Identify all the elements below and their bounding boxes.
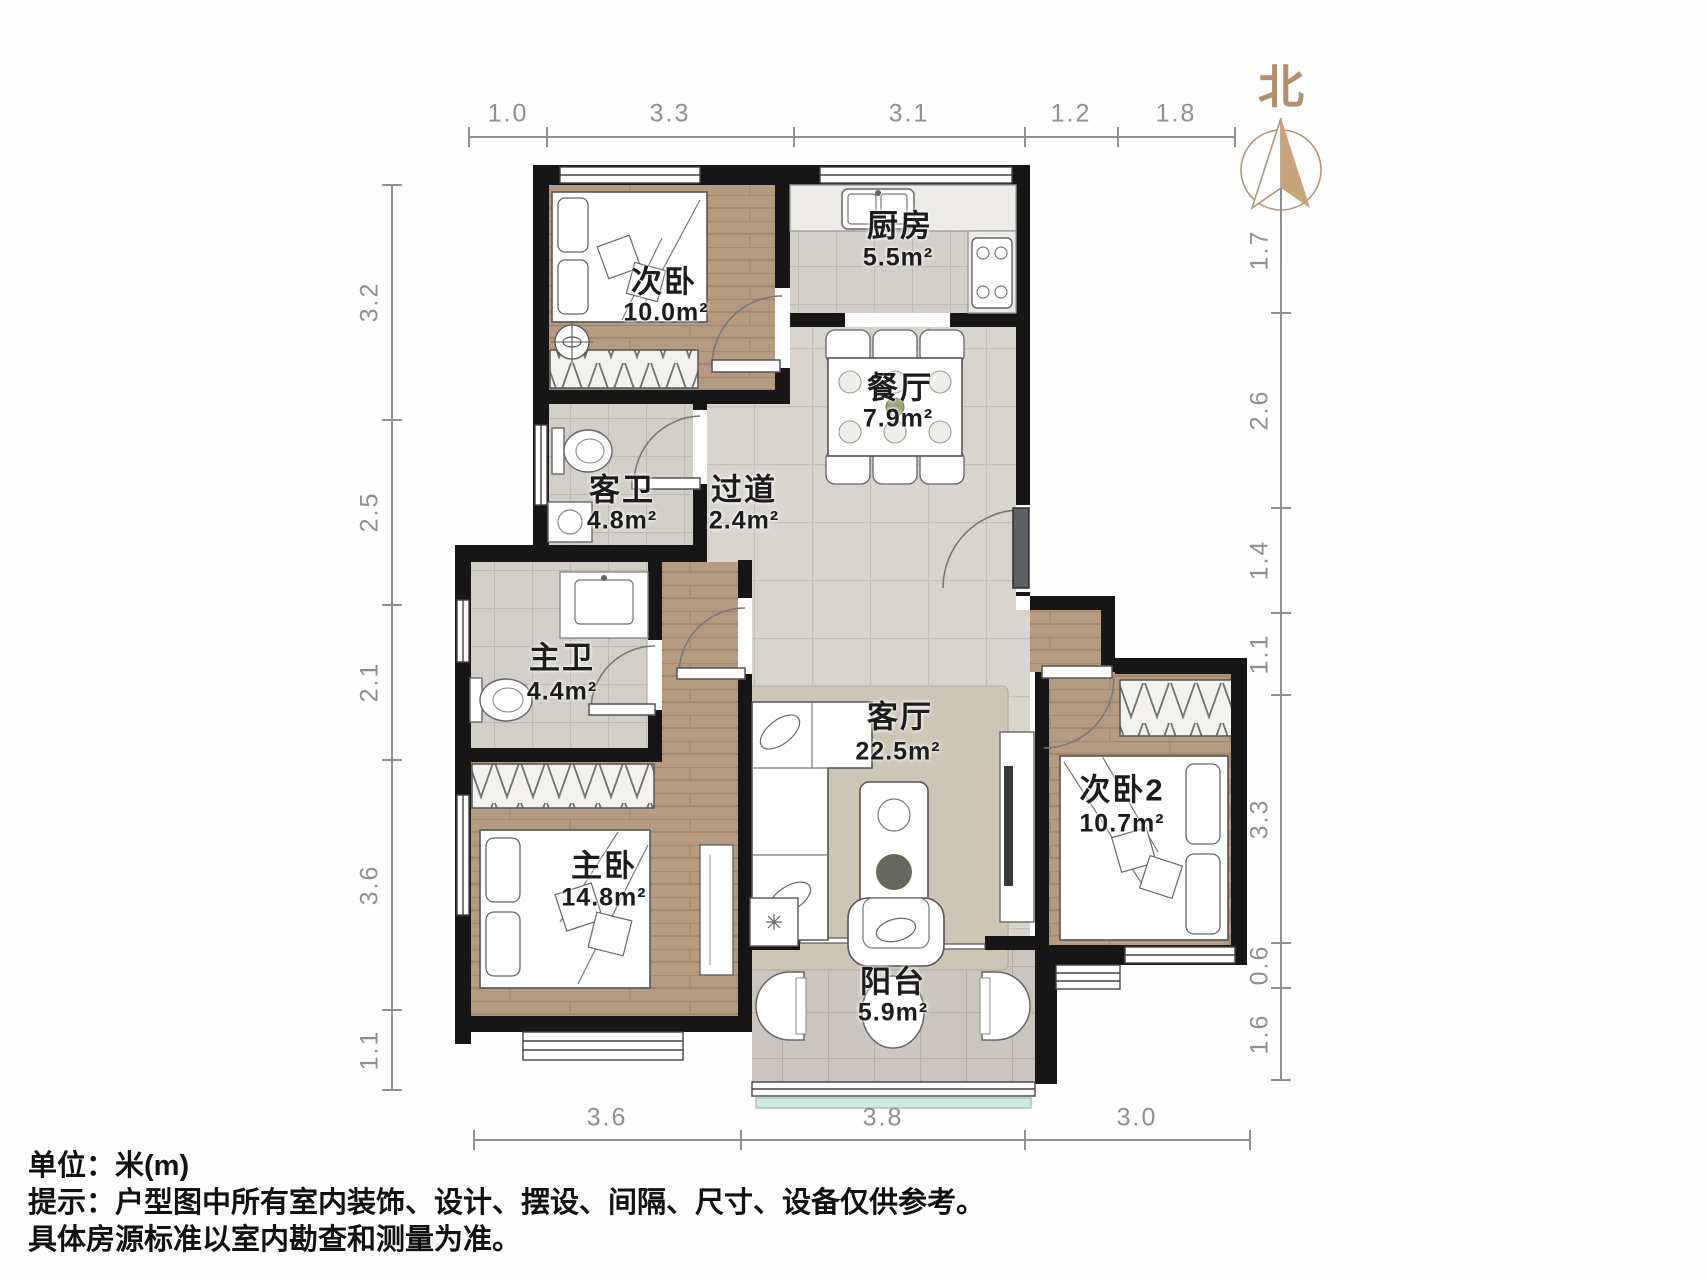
room-name: 次卧2: [1079, 775, 1164, 806]
sink-guest-bathroom: [548, 502, 592, 542]
dim-top-2: 3.3: [650, 100, 691, 129]
toilet-master-bathroom: [470, 678, 532, 722]
room-name: 餐厅: [867, 373, 933, 404]
dim-right-3: 1.4: [1246, 540, 1275, 581]
window-guest-bathroom: [535, 425, 547, 505]
dim-right-6: 0.6: [1246, 945, 1275, 986]
bay-window-master-bedroom: [523, 1032, 683, 1060]
window-master-bathroom: [457, 600, 469, 662]
tv-console: [1000, 732, 1034, 922]
room-name: 客厅: [867, 702, 933, 733]
room-area: 5.9m²: [858, 1001, 928, 1026]
vanity-master-bathroom: [560, 572, 648, 638]
footer-standard-line: 具体房源标准以室内勘查和测量为准。: [28, 1222, 985, 1259]
footer-notes: 单位：米(m) 提示：户型图中所有室内装饰、设计、摆设、间隔、尺寸、设备仅供参考…: [28, 1148, 985, 1259]
dim-right-5: 3.3: [1246, 799, 1275, 840]
wardrobe-master-bedroom: [472, 764, 654, 808]
room-name: 客卫: [589, 475, 655, 506]
dim-right-4: 1.1: [1246, 634, 1275, 675]
compass-arrow-right: [1281, 118, 1310, 208]
window-kitchen: [820, 167, 1012, 183]
dim-top-1: 1.0: [488, 100, 529, 129]
room-area: 10.0m²: [623, 301, 708, 326]
room-name: 次卧: [631, 267, 697, 298]
tv: [1004, 766, 1013, 886]
armchair: [848, 898, 944, 966]
dim-right-1: 1.7: [1246, 230, 1275, 271]
dim-left-1: 3.2: [356, 282, 385, 323]
room-area: 4.8m²: [587, 509, 657, 534]
room-area: 10.7m²: [1079, 812, 1164, 837]
window-secondary-bedroom: [560, 167, 700, 183]
dim-top-4: 1.2: [1051, 100, 1092, 129]
room-name: 主卧: [571, 851, 637, 882]
dim-left-3: 2.1: [356, 662, 385, 703]
north-label: 北: [1258, 51, 1304, 117]
dim-right-7: 1.6: [1246, 1014, 1275, 1055]
wardrobe-secondary-bedroom-2: [1120, 680, 1238, 736]
dim-left-4: 3.6: [356, 865, 385, 906]
room-area: 4.4m²: [527, 680, 597, 705]
dim-bottom-3: 3.0: [1117, 1104, 1158, 1133]
dim-top-5: 1.8: [1156, 100, 1197, 129]
dim-bottom-1: 3.6: [587, 1104, 628, 1133]
room-area: 14.8m²: [561, 886, 646, 911]
stove-icon: [972, 238, 1012, 308]
dim-right-2: 2.6: [1246, 390, 1275, 431]
floor-bedroom2-vestibule: [1030, 610, 1101, 672]
room-name: 主卫: [529, 643, 595, 674]
balcony-glass-wall: [752, 1082, 1035, 1096]
room-name: 厨房: [867, 211, 933, 242]
room-area: 5.5m²: [863, 246, 933, 271]
footer-unit-line: 单位：米(m): [28, 1148, 985, 1185]
window-secondary-bedroom-2: [1125, 947, 1235, 963]
room-area: 22.5m²: [855, 740, 940, 765]
room-area: 2.4m²: [709, 509, 779, 534]
room-area: 7.9m²: [863, 407, 933, 432]
dresser-master-bedroom: [700, 845, 733, 975]
floorplan-drawing: [0, 0, 1707, 1280]
toilet-guest-bathroom: [552, 428, 612, 474]
floorplan-page: 次卧 10.0m² 厨房 5.5m² 餐厅 7.9m² 客卫 4.8m² 过道 …: [0, 0, 1707, 1280]
dim-top-3: 3.1: [889, 100, 930, 129]
window-master-bedroom: [457, 795, 469, 915]
compass-arrow-left: [1252, 118, 1281, 208]
dim-left-2: 2.5: [356, 492, 385, 533]
window-step: [1056, 965, 1120, 989]
dim-bottom-2: 3.8: [863, 1104, 904, 1133]
room-name: 阳台: [860, 967, 926, 998]
dim-left-5: 1.1: [356, 1030, 385, 1071]
footer-disclaimer-line: 提示：户型图中所有室内装饰、设计、摆设、间隔、尺寸、设备仅供参考。: [28, 1185, 985, 1222]
side-table: [750, 898, 798, 946]
room-name: 过道: [711, 475, 777, 506]
